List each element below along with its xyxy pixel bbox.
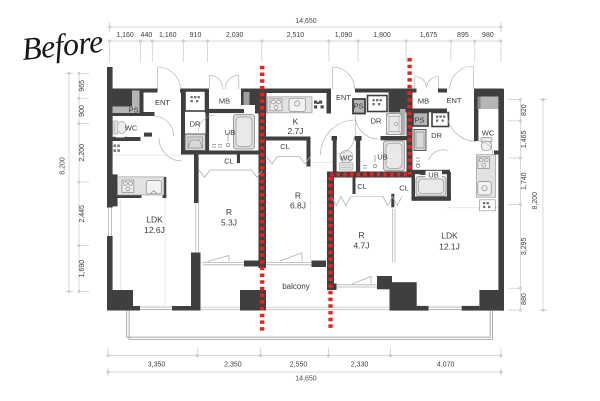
svg-text:CL: CL <box>399 184 409 193</box>
svg-text:965: 965 <box>79 80 86 92</box>
svg-text:980: 980 <box>482 32 494 39</box>
svg-text:12.6J: 12.6J <box>144 225 165 235</box>
svg-text:WC: WC <box>482 129 495 138</box>
svg-text:R: R <box>295 191 301 201</box>
svg-text:1,675: 1,675 <box>420 32 438 39</box>
svg-text:6.8J: 6.8J <box>290 201 306 211</box>
svg-text:440: 440 <box>141 32 153 39</box>
svg-text:ENT: ENT <box>447 96 462 105</box>
svg-text:8,200: 8,200 <box>60 157 67 175</box>
svg-text:CL: CL <box>280 142 290 151</box>
svg-text:2,510: 2,510 <box>287 32 305 39</box>
svg-text:PS: PS <box>414 116 424 125</box>
svg-text:K: K <box>293 117 299 127</box>
svg-text:UB: UB <box>377 153 387 162</box>
svg-text:1,800: 1,800 <box>373 32 391 39</box>
svg-text:balcony: balcony <box>282 282 310 291</box>
svg-text:DR: DR <box>371 117 382 126</box>
svg-text:895: 895 <box>457 32 469 39</box>
svg-text:CL: CL <box>357 182 367 191</box>
svg-text:ENT: ENT <box>155 98 170 107</box>
svg-text:MB: MB <box>219 97 230 106</box>
svg-text:2.7J: 2.7J <box>287 126 303 136</box>
svg-text:LDK: LDK <box>441 231 458 241</box>
svg-text:14,650: 14,650 <box>295 18 317 25</box>
svg-text:1,160: 1,160 <box>116 32 134 39</box>
svg-text:2,030: 2,030 <box>226 32 244 39</box>
svg-text:880: 880 <box>521 293 528 305</box>
svg-text:UB: UB <box>225 128 235 137</box>
svg-text:ENT: ENT <box>336 93 351 102</box>
svg-text:WC: WC <box>125 124 138 133</box>
svg-text:5.3J: 5.3J <box>221 218 237 228</box>
svg-text:3,350: 3,350 <box>148 362 166 369</box>
svg-text:DR: DR <box>431 131 442 140</box>
svg-text:MB: MB <box>418 97 429 106</box>
svg-text:LDK: LDK <box>146 215 163 225</box>
svg-text:1,090: 1,090 <box>335 32 353 39</box>
svg-text:900: 900 <box>79 105 86 117</box>
svg-text:R: R <box>226 207 232 217</box>
svg-text:12.1J: 12.1J <box>439 242 460 252</box>
svg-text:1,740: 1,740 <box>521 172 528 190</box>
svg-text:4,070: 4,070 <box>437 362 455 369</box>
svg-text:2,445: 2,445 <box>79 205 86 223</box>
svg-text:UB: UB <box>428 170 438 179</box>
svg-text:820: 820 <box>521 104 528 116</box>
svg-text:1,690: 1,690 <box>79 260 86 278</box>
svg-text:2,330: 2,330 <box>351 362 369 369</box>
svg-text:2,350: 2,350 <box>224 362 242 369</box>
svg-text:910: 910 <box>190 32 202 39</box>
svg-text:WC: WC <box>340 154 353 163</box>
svg-text:PS: PS <box>128 106 138 115</box>
svg-text:4.7J: 4.7J <box>353 241 369 251</box>
svg-text:1,465: 1,465 <box>521 130 528 148</box>
svg-text:R: R <box>358 230 364 240</box>
svg-text:8,200: 8,200 <box>532 192 539 210</box>
svg-text:2,550: 2,550 <box>290 362 308 369</box>
svg-text:DR: DR <box>190 120 201 129</box>
svg-text:CL: CL <box>224 157 234 166</box>
svg-text:2,200: 2,200 <box>79 144 86 162</box>
svg-text:14,650: 14,650 <box>295 376 317 383</box>
svg-text:3,295: 3,295 <box>521 237 528 255</box>
svg-text:PS: PS <box>353 102 363 111</box>
svg-text:1,160: 1,160 <box>159 32 177 39</box>
